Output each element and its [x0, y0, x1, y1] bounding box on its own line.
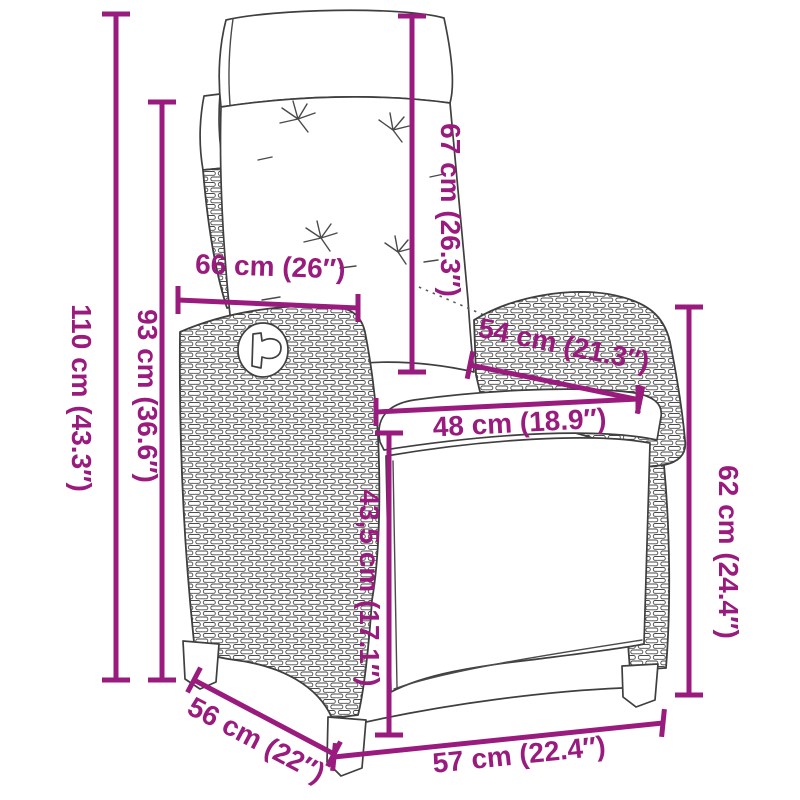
- front-panel: [386, 438, 650, 692]
- recline-lever: [238, 323, 288, 377]
- dim-label-seat-height: 43,5 cm (17.1″): [354, 489, 385, 686]
- dim-base-width: 57 cm (22.4″): [333, 709, 665, 779]
- front-right-leg: [622, 664, 658, 707]
- dim-total-height: 110 cm (43.3″): [66, 14, 130, 680]
- dim-label-backrest-height: 93 cm (36.6″): [132, 309, 163, 483]
- base-rail: [357, 688, 622, 724]
- dim-label-back-cushion-height: 67 cm (26.3″): [435, 123, 466, 297]
- dim-armrest-height: 62 cm (24.4″): [675, 307, 744, 695]
- dimension-diagram-page: 110 cm (43.3″) 93 cm (36.6″) 67 cm (26.3…: [0, 0, 800, 800]
- dim-label-armrest-height: 62 cm (24.4″): [713, 465, 744, 639]
- dim-label-total-height: 110 cm (43.3″): [66, 304, 97, 492]
- dim-backrest-height: 93 cm (36.6″): [132, 102, 176, 680]
- dimension-diagram: 110 cm (43.3″) 93 cm (36.6″) 67 cm (26.3…: [0, 0, 800, 800]
- dim-label-backrest-width: 66 cm (26″): [195, 248, 346, 284]
- headrest-cushion: [219, 10, 452, 107]
